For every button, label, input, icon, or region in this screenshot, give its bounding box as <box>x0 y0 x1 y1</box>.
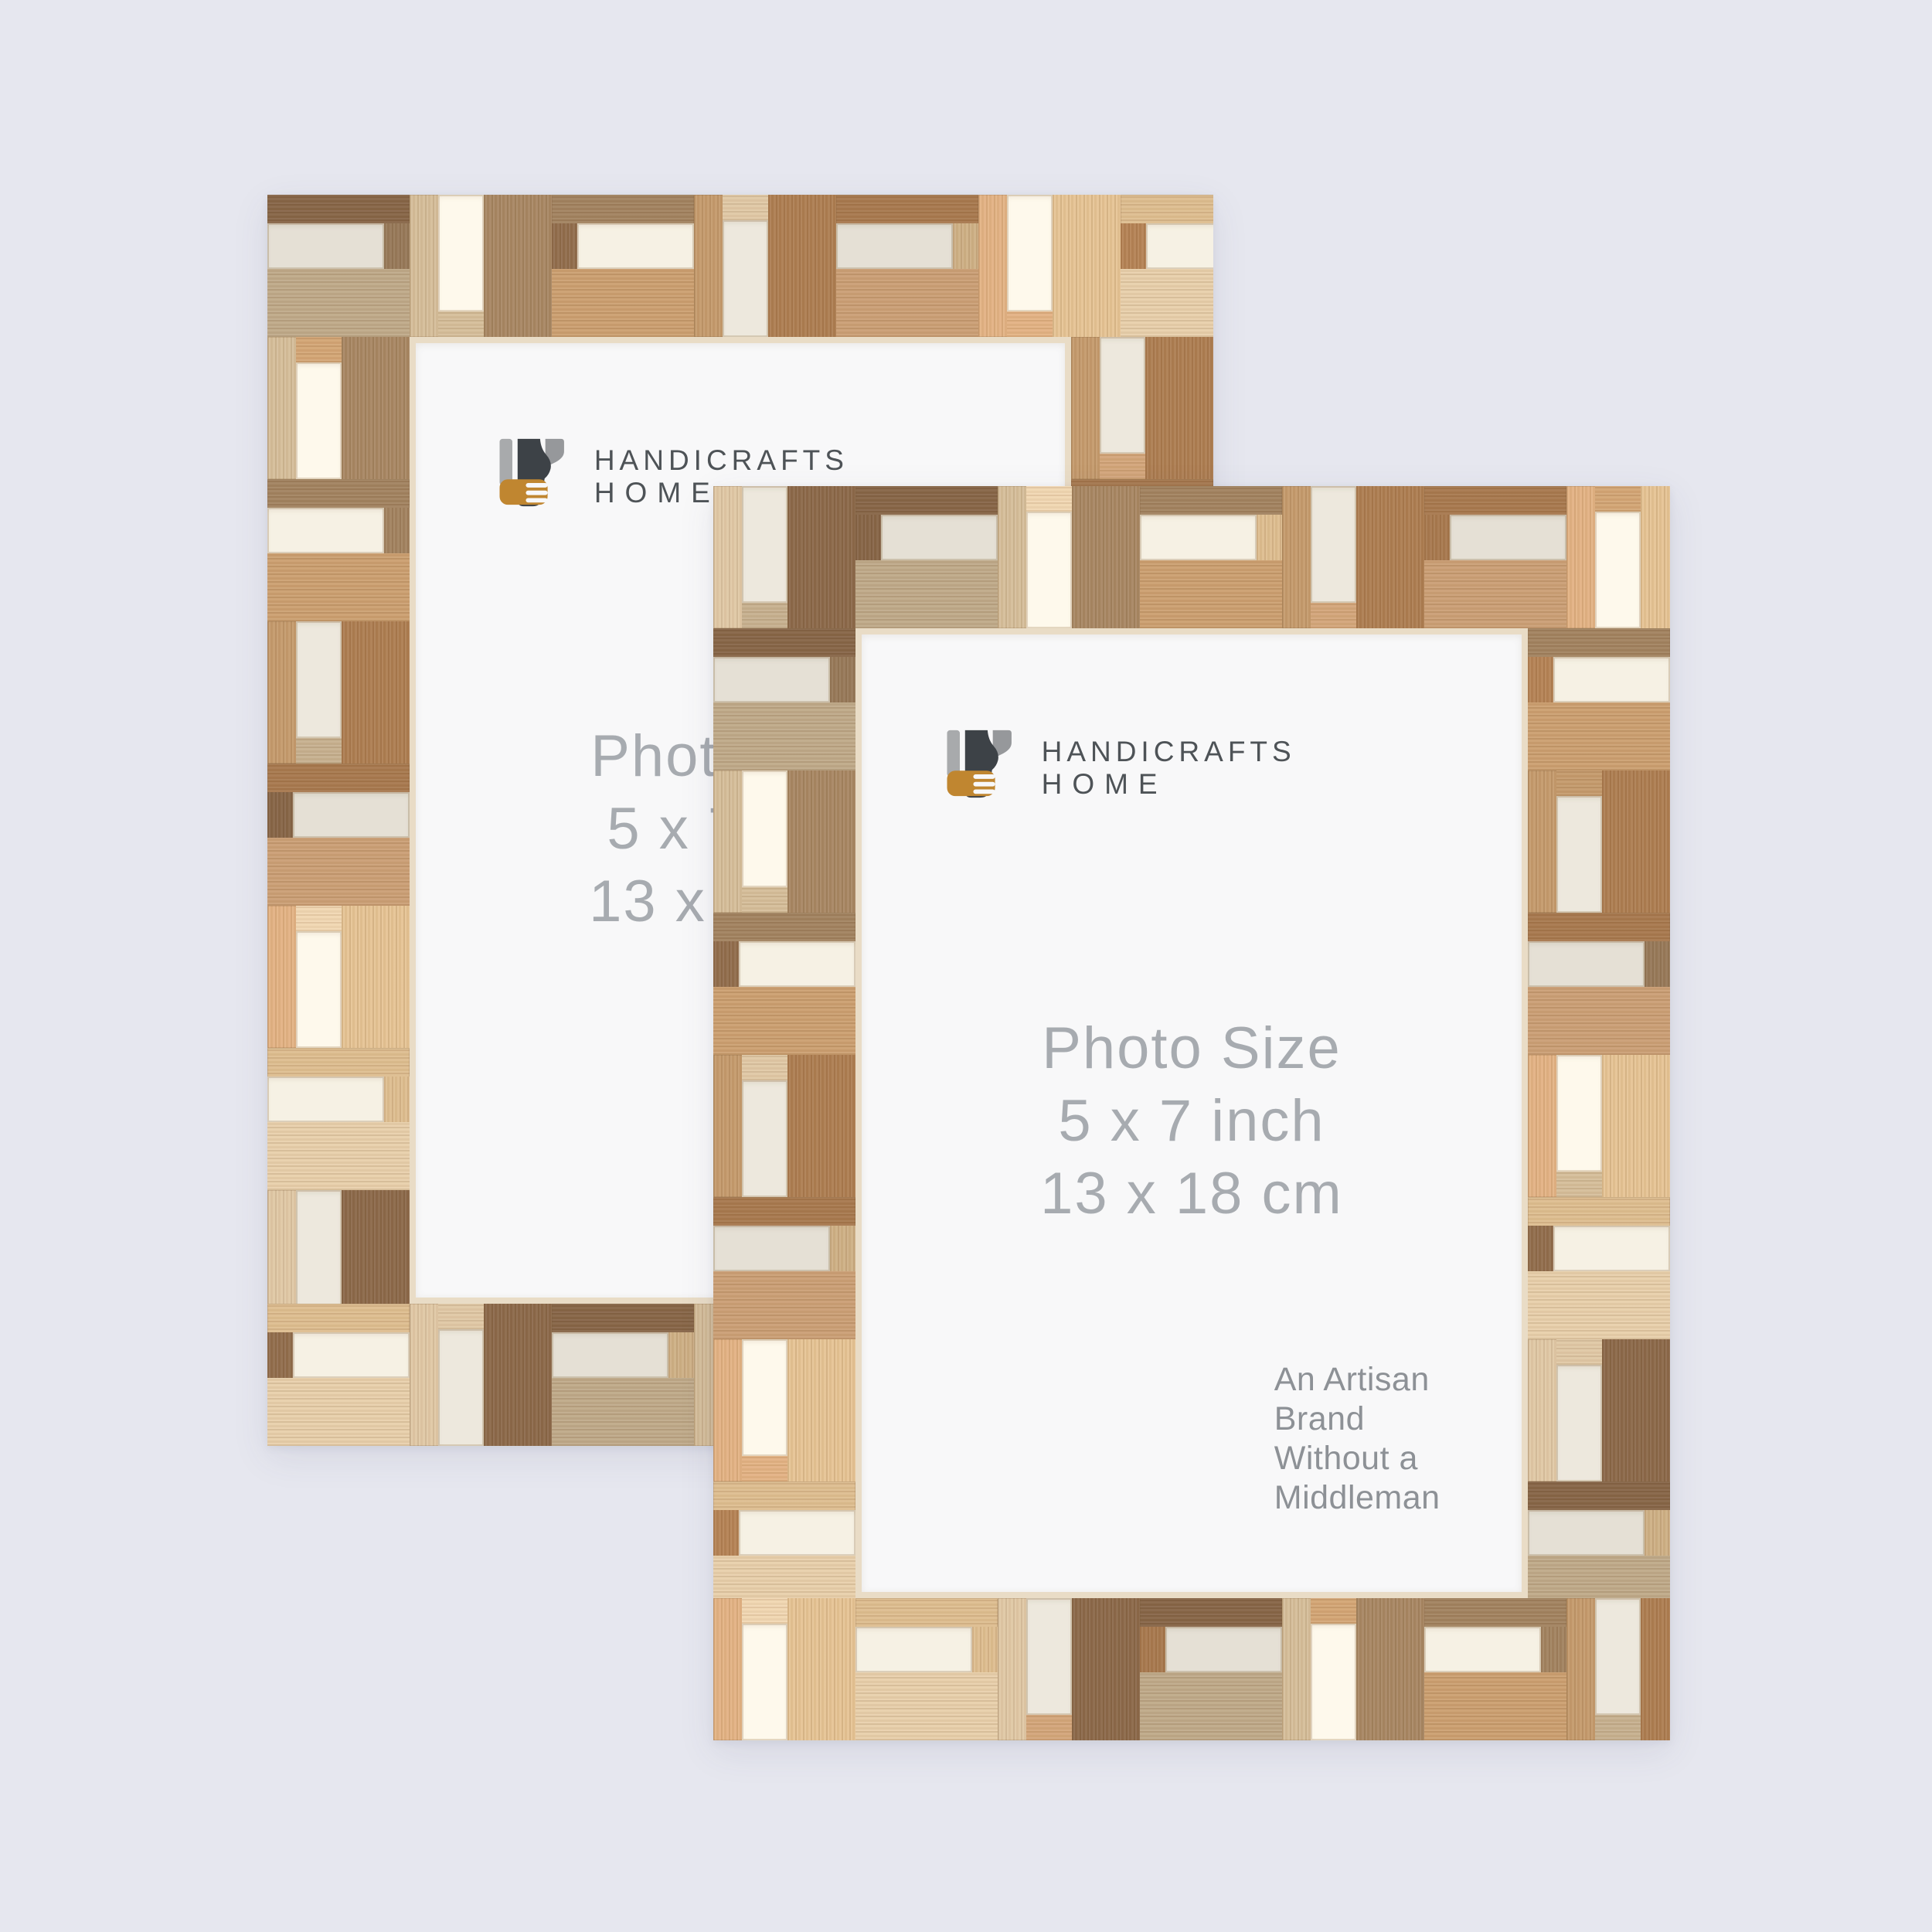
bone-inlay-bar <box>293 792 410 838</box>
wood-block <box>1026 1715 1072 1740</box>
wood-block <box>1424 515 1450 560</box>
wood-block <box>1424 1672 1566 1740</box>
handicrafts-home-logo-icon <box>498 434 577 509</box>
mosaic-tile <box>1140 1598 1282 1740</box>
bone-inlay-bar <box>1007 195 1053 311</box>
bone-inlay-bar <box>1528 1510 1645 1556</box>
bone-inlay-bar <box>1311 486 1356 603</box>
wood-block <box>342 906 410 1048</box>
bone-inlay-bar <box>742 770 787 887</box>
mosaic-border-top <box>713 486 1670 628</box>
bone-inlay-bar <box>723 220 768 337</box>
wood-block <box>1356 1598 1424 1740</box>
wood-block <box>836 269 978 337</box>
wood-block <box>296 906 342 931</box>
mosaic-tile <box>836 195 978 337</box>
wood-block <box>742 1456 787 1481</box>
bone-inlay-bar <box>293 1332 410 1378</box>
wood-block <box>1556 770 1602 796</box>
mosaic-tile <box>1282 1598 1424 1740</box>
wood-block <box>768 195 836 337</box>
bone-inlay-bar <box>296 621 342 738</box>
wood-block <box>742 603 787 628</box>
bone-inlay-bar <box>1528 941 1645 987</box>
wood-block <box>1641 486 1670 628</box>
bone-inlay-bar <box>296 931 342 1048</box>
wood-block <box>484 195 552 337</box>
wood-block <box>1072 486 1140 628</box>
wood-block <box>742 1055 787 1080</box>
wood-block <box>267 553 410 621</box>
wood-block <box>855 560 998 628</box>
wood-block <box>787 486 855 628</box>
wood-block <box>1595 1715 1641 1740</box>
wood-block <box>713 1556 855 1598</box>
bone-inlay-bar <box>881 515 998 560</box>
mosaic-tile <box>713 628 855 770</box>
wood-block <box>1528 702 1670 770</box>
wood-block <box>972 1627 998 1672</box>
wood-block <box>1311 603 1356 628</box>
bone-inlay-bar <box>1146 223 1213 269</box>
mosaic-tile <box>1528 1055 1670 1197</box>
mosaic-tile <box>1528 1481 1670 1598</box>
mosaic-tile <box>267 764 410 906</box>
bone-inlay-bar <box>438 195 484 311</box>
mosaic-tile <box>978 195 1121 337</box>
wood-block <box>384 1077 410 1122</box>
mosaic-tile <box>713 1055 855 1197</box>
mosaic-tile <box>1121 195 1213 337</box>
wood-block <box>1026 486 1072 512</box>
bone-inlay-bar <box>836 223 953 269</box>
wood-block <box>267 792 293 838</box>
mosaic-tile <box>267 479 410 621</box>
wood-block <box>1257 515 1282 560</box>
mosaic-tile <box>267 1190 410 1304</box>
mosaic-tile <box>998 486 1140 628</box>
wood-block <box>342 621 410 764</box>
wood-block <box>552 223 577 269</box>
bone-inlay-bar <box>742 1624 787 1740</box>
bone-inlay-bar <box>1026 512 1072 628</box>
bone-inlay-bar <box>713 657 830 702</box>
wood-block <box>713 702 855 770</box>
artisan-tagline: An Artisan Brand Without a Middleman <box>1274 1360 1440 1518</box>
bone-inlay-bar <box>1556 1055 1602 1172</box>
bone-inlay-bar <box>713 1226 830 1271</box>
bone-inlay-bar <box>1100 337 1145 454</box>
wood-block <box>1140 1627 1165 1672</box>
wood-block <box>668 1332 694 1378</box>
wood-block <box>1145 337 1213 479</box>
wood-block <box>1356 486 1424 628</box>
bone-inlay-bar <box>742 486 787 603</box>
mosaic-border-right <box>1528 628 1670 1598</box>
wood-block <box>438 1304 484 1329</box>
mosaic-tile <box>267 621 410 764</box>
wood-block <box>552 1378 694 1446</box>
wood-block <box>1602 1339 1670 1481</box>
wood-block <box>1528 1271 1670 1339</box>
wood-block <box>267 269 410 337</box>
wood-block <box>953 223 978 269</box>
wood-block <box>855 515 881 560</box>
wood-block <box>267 1378 410 1446</box>
bone-inlay-bar <box>1595 512 1641 628</box>
bone-inlay-bar <box>438 1329 484 1446</box>
bone-inlay-bar <box>267 1077 384 1122</box>
mosaic-tile <box>552 195 694 337</box>
bone-inlay-bar <box>742 1080 787 1197</box>
bone-inlay-bar <box>1450 515 1566 560</box>
bone-inlay-bar <box>267 508 384 553</box>
wood-block <box>1311 1598 1356 1624</box>
wood-block <box>787 1055 855 1197</box>
mosaic-tile <box>713 913 855 1055</box>
wood-block <box>830 657 855 702</box>
wood-block <box>787 1339 855 1481</box>
bone-inlay-bar <box>552 1332 668 1378</box>
wood-block <box>787 1598 855 1740</box>
wood-block <box>787 770 855 913</box>
mosaic-tile <box>267 337 410 479</box>
mosaic-border-bottom <box>713 1598 1670 1740</box>
bone-inlay-bar <box>267 223 384 269</box>
bone-inlay-bar <box>1556 796 1602 913</box>
brand-logo: HANDICRAFTS HOME <box>945 726 1296 801</box>
bone-inlay-bar <box>1311 1624 1356 1740</box>
frame-insert: HANDICRAFTS HOME Photo Size 5 x 7 inch 1… <box>855 628 1528 1598</box>
mosaic-tile <box>713 1339 855 1481</box>
bone-inlay-bar <box>1595 1598 1641 1715</box>
wood-block <box>855 1672 998 1740</box>
mosaic-tile <box>855 1598 998 1740</box>
mosaic-tile <box>1528 628 1670 770</box>
wood-block <box>1053 195 1121 337</box>
mosaic-tile <box>1528 770 1670 913</box>
mosaic-tile <box>267 1304 410 1446</box>
wood-block <box>267 1122 410 1190</box>
mosaic-tile <box>713 486 855 628</box>
wood-block <box>742 887 787 913</box>
wood-block <box>1072 1598 1140 1740</box>
wood-block <box>1100 454 1145 479</box>
bone-inlay-bar <box>296 362 342 479</box>
wood-block <box>1556 1172 1602 1197</box>
photo-size-label: Photo Size 5 x 7 inch 13 x 18 cm <box>862 1012 1522 1230</box>
bone-inlay-bar <box>1140 515 1257 560</box>
mosaic-tile <box>1282 486 1424 628</box>
wood-block <box>1424 560 1566 628</box>
mosaic-tile <box>267 1048 410 1190</box>
wood-block <box>1556 1339 1602 1365</box>
mosaic-tile <box>694 195 836 337</box>
bone-inlay-bar <box>1026 1598 1072 1715</box>
wood-block <box>1541 1627 1566 1672</box>
mosaic-tile <box>1528 1197 1670 1339</box>
mosaic-tile <box>552 1304 694 1446</box>
mosaic-tile <box>410 1304 552 1446</box>
bone-inlay-bar <box>1553 1226 1670 1271</box>
wood-block <box>1645 1510 1670 1556</box>
wood-block <box>830 1226 855 1271</box>
mosaic-tile <box>855 486 998 628</box>
mosaic-tile <box>713 1598 855 1740</box>
mosaic-tile <box>1424 1598 1566 1740</box>
wood-block <box>713 1510 739 1556</box>
mosaic-tile <box>1528 1339 1670 1481</box>
bone-inlay-bar <box>739 1510 855 1556</box>
photo-frame-front: HANDICRAFTS HOME Photo Size 5 x 7 inch 1… <box>713 486 1670 1740</box>
mosaic-border-left <box>267 337 410 1304</box>
bone-inlay-bar <box>296 1190 342 1304</box>
bone-inlay-bar <box>742 1339 787 1456</box>
product-photo-stage: HANDICRAFTS HOME Photo Size 5 x 7 inch 1… <box>0 0 1932 1932</box>
mosaic-tile <box>713 770 855 913</box>
wood-block <box>713 1271 855 1339</box>
mosaic-tile <box>1566 486 1670 628</box>
wood-block <box>1645 941 1670 987</box>
wood-block <box>1121 223 1146 269</box>
mosaic-tile <box>410 195 552 337</box>
wood-block <box>342 1190 410 1304</box>
mosaic-border-left <box>713 628 855 1598</box>
mosaic-tile <box>1424 486 1566 628</box>
mosaic-tile <box>1528 913 1670 1055</box>
bone-inlay-bar <box>577 223 694 269</box>
wood-block <box>267 1332 293 1378</box>
mosaic-tile <box>1140 486 1282 628</box>
wood-block <box>1140 1672 1282 1740</box>
wood-block <box>296 738 342 764</box>
bone-inlay-bar <box>1165 1627 1282 1672</box>
mosaic-tile <box>1566 1598 1670 1740</box>
wood-block <box>742 1598 787 1624</box>
wood-block <box>552 269 694 337</box>
wood-block <box>1140 560 1282 628</box>
wood-block <box>1641 1598 1670 1740</box>
wood-block <box>723 195 768 220</box>
mosaic-tile <box>998 1598 1140 1740</box>
wood-block <box>1528 1226 1553 1271</box>
wood-block <box>1007 311 1053 337</box>
wood-block <box>1602 1055 1670 1197</box>
mosaic-tile <box>713 1197 855 1339</box>
bone-inlay-bar <box>739 941 855 987</box>
wood-block <box>713 941 739 987</box>
mosaic-tile <box>713 1481 855 1598</box>
brand-name: HANDICRAFTS HOME <box>1042 726 1296 801</box>
bone-inlay-bar <box>1424 1627 1541 1672</box>
wood-block <box>1595 486 1641 512</box>
wood-block <box>1528 987 1670 1055</box>
wood-block <box>1602 770 1670 913</box>
wood-block <box>484 1304 552 1446</box>
wood-block <box>384 223 410 269</box>
mosaic-border-top <box>267 195 1213 337</box>
mosaic-tile <box>267 195 410 337</box>
wood-block <box>342 337 410 479</box>
wood-block <box>1121 269 1213 337</box>
wood-block <box>296 337 342 362</box>
wood-block <box>384 508 410 553</box>
bone-inlay-bar <box>855 1627 972 1672</box>
wood-block <box>438 311 484 337</box>
mosaic-tile <box>1071 337 1213 479</box>
mosaic-tile <box>267 906 410 1048</box>
wood-block <box>1528 1556 1670 1598</box>
wood-block <box>267 838 410 906</box>
wood-block <box>1528 657 1553 702</box>
wood-block <box>713 987 855 1055</box>
bone-inlay-bar <box>1556 1365 1602 1481</box>
handicrafts-home-logo-icon <box>945 726 1024 801</box>
bone-inlay-bar <box>1553 657 1670 702</box>
